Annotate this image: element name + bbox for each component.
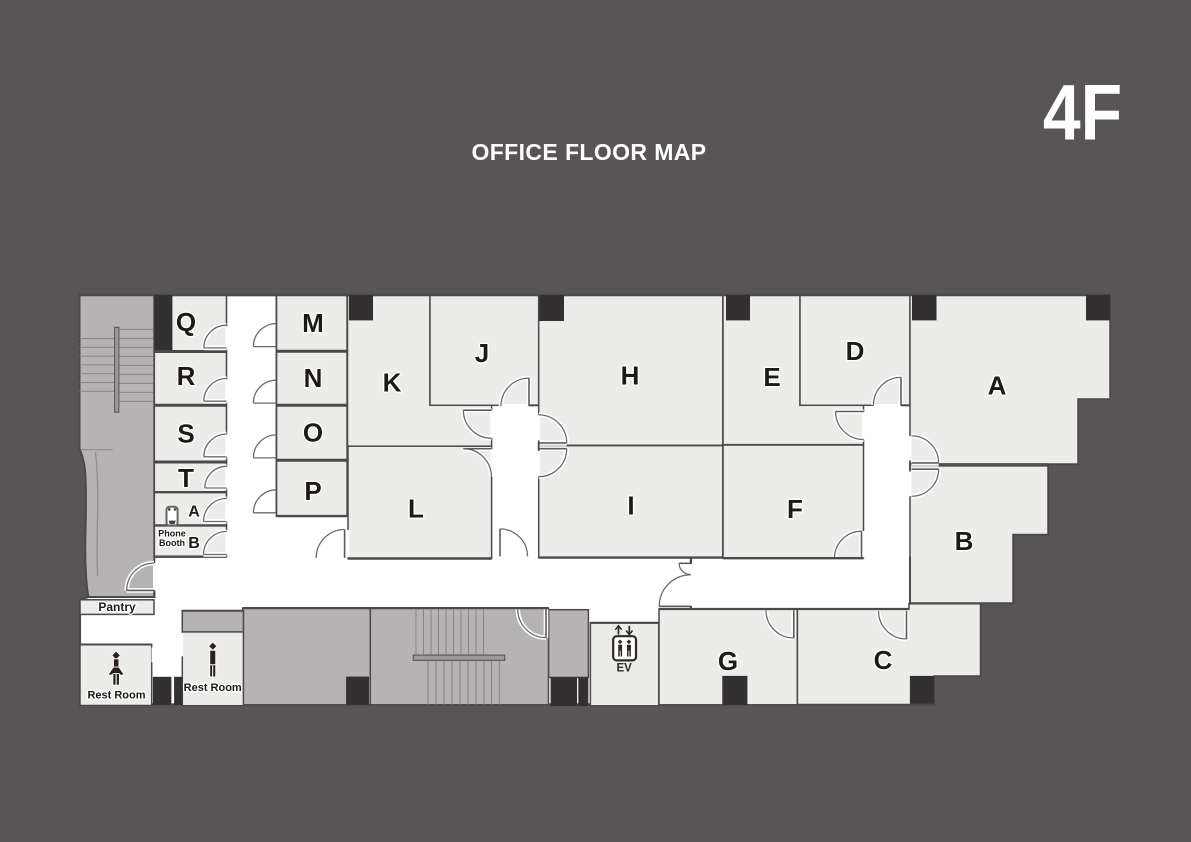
svg-text:B: B (188, 535, 200, 552)
svg-text:I: I (627, 491, 634, 521)
svg-text:A: A (988, 371, 1007, 401)
svg-text:OFFICE FLOOR MAP: OFFICE FLOOR MAP (471, 139, 706, 165)
svg-text:A: A (188, 504, 200, 521)
svg-text:Phone: Phone (158, 529, 186, 539)
svg-text:P: P (304, 476, 321, 506)
svg-text:J: J (475, 338, 489, 368)
svg-text:D: D (846, 336, 865, 366)
svg-text:T: T (178, 463, 194, 493)
svg-text:4F: 4F (1043, 68, 1122, 157)
svg-text:Pantry: Pantry (98, 600, 136, 614)
svg-text:Q: Q (176, 307, 196, 337)
svg-text:H: H (621, 361, 640, 391)
svg-text:R: R (177, 361, 196, 391)
svg-text:B: B (955, 526, 974, 556)
svg-text:S: S (177, 419, 194, 449)
svg-text:G: G (718, 646, 738, 676)
svg-text:N: N (304, 363, 323, 393)
svg-text:K: K (383, 368, 402, 398)
svg-text:Rest Room: Rest Room (184, 682, 242, 694)
svg-text:C: C (874, 645, 893, 675)
svg-text:Rest Room: Rest Room (87, 689, 145, 701)
svg-text:M: M (302, 308, 324, 338)
svg-text:L: L (408, 494, 424, 524)
svg-text:E: E (763, 362, 780, 392)
svg-text:EV: EV (617, 663, 633, 675)
svg-text:O: O (303, 418, 323, 448)
svg-text:F: F (787, 494, 803, 524)
svg-text:Booth: Booth (159, 538, 185, 548)
